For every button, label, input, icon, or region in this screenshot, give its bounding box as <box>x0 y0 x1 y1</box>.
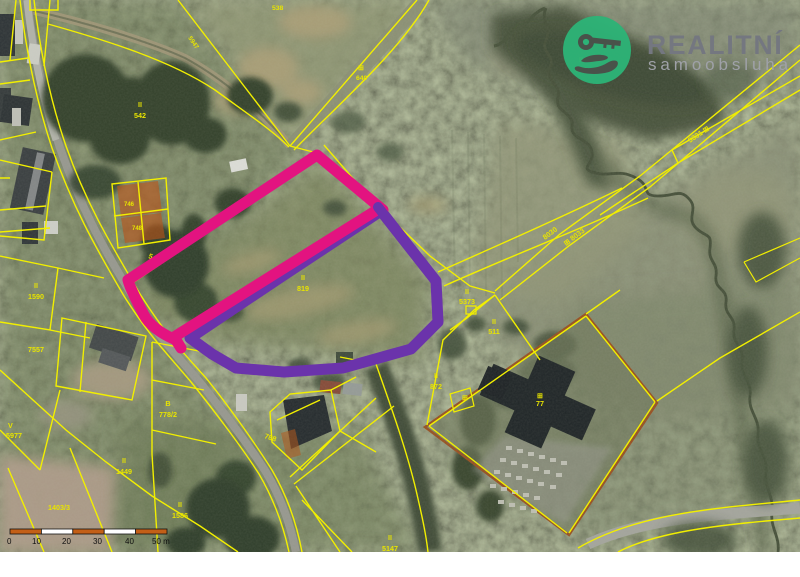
svg-text:40: 40 <box>125 537 134 546</box>
svg-text:II: II <box>122 456 126 465</box>
svg-text:1403/3: 1403/3 <box>48 503 70 512</box>
svg-text:B: B <box>165 399 170 408</box>
svg-text:II: II <box>465 287 469 296</box>
svg-text:II: II <box>34 281 38 290</box>
svg-text:872: 872 <box>430 382 442 391</box>
svg-text:640: 640 <box>356 75 368 82</box>
svg-text:samoobsluha: samoobsluha <box>648 55 792 74</box>
svg-text:V: V <box>8 421 13 430</box>
svg-text:1590: 1590 <box>28 292 44 301</box>
svg-text:748: 748 <box>132 226 143 232</box>
svg-text:30: 30 <box>93 537 102 546</box>
svg-text:538: 538 <box>272 5 284 12</box>
svg-text:⊞: ⊞ <box>462 393 468 402</box>
svg-text:746: 746 <box>124 202 135 208</box>
svg-text:II: II <box>178 500 182 509</box>
svg-text:II: II <box>301 273 305 282</box>
svg-text:77: 77 <box>536 399 544 408</box>
svg-text:10: 10 <box>32 537 41 546</box>
svg-text:II: II <box>492 317 496 326</box>
svg-text:819: 819 <box>297 284 309 293</box>
svg-text:7557: 7557 <box>28 345 44 354</box>
svg-text:⊞: ⊞ <box>537 391 543 400</box>
svg-text:II: II <box>138 100 142 109</box>
svg-text:5977: 5977 <box>6 431 22 440</box>
svg-text:5147: 5147 <box>382 544 398 552</box>
svg-text:5373: 5373 <box>459 297 475 306</box>
svg-text:1449: 1449 <box>116 467 132 476</box>
svg-text:II: II <box>388 533 392 542</box>
svg-text:1586: 1586 <box>172 511 188 520</box>
svg-text:II: II <box>434 371 438 380</box>
svg-text:0: 0 <box>7 537 12 546</box>
svg-text:20: 20 <box>62 537 71 546</box>
svg-text:50 m: 50 m <box>152 537 170 546</box>
svg-text:⊞: ⊞ <box>358 63 364 72</box>
svg-text:542: 542 <box>134 111 146 120</box>
svg-text:778/2: 778/2 <box>159 410 177 419</box>
svg-text:511: 511 <box>488 327 500 336</box>
